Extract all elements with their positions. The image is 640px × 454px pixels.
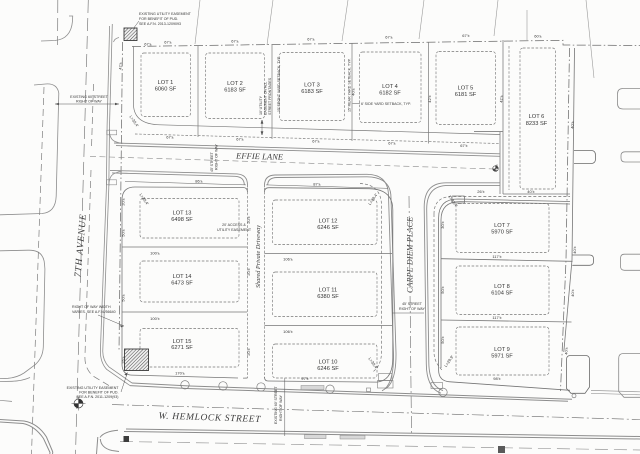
svg-text:STREET FRONTAGES: STREET FRONTAGES (268, 77, 272, 115)
svg-text:6380 SF: 6380 SF (317, 294, 339, 300)
svg-text:20'±: 20'± (121, 197, 126, 205)
svg-text:RIGHT OF WAY: RIGHT OF WAY (399, 307, 425, 311)
svg-text:SEE A.F.N. 2011-1209(93): SEE A.F.N. 2011-1209(93) (76, 395, 118, 399)
svg-text:45' STREET: 45' STREET (210, 151, 214, 172)
svg-text:6181 SF: 6181 SF (455, 92, 477, 98)
svg-text:EXISTING UTILITY EASEMENT: EXISTING UTILITY EASEMENT (67, 386, 120, 390)
svg-text:RIGHT OF WAY: RIGHT OF WAY (279, 395, 283, 421)
svg-text:Shared Private Driveway: Shared Private Driveway (255, 225, 262, 288)
svg-text:5970 SF: 5970 SF (491, 230, 513, 236)
svg-text:40'±: 40'± (570, 288, 575, 296)
svg-text:EFFIE LANE: EFFIE LANE (235, 150, 284, 161)
svg-text:67'±: 67'± (164, 40, 172, 45)
svg-text:50'±: 50'± (121, 293, 126, 301)
svg-text:LOT 5: LOT 5 (458, 86, 474, 92)
svg-text:UTILITY EASEMENT: UTILITY EASEMENT (217, 228, 252, 232)
svg-text:10' UTILITY: 10' UTILITY (259, 95, 263, 115)
svg-text:40'±: 40'± (351, 87, 356, 95)
svg-text:LOT 2: LOT 2 (227, 81, 243, 87)
svg-text:RIGHT OF WAY: RIGHT OF WAY (76, 100, 102, 104)
svg-text:6183 SF: 6183 SF (301, 89, 323, 95)
svg-text:FOR BENEFIT OF PUD.: FOR BENEFIT OF PUD. (79, 391, 118, 395)
svg-text:EXISTING 60' STREET: EXISTING 60' STREET (274, 386, 278, 424)
svg-text:LOT 9: LOT 9 (494, 347, 510, 353)
svg-text:LOT 7: LOT 7 (494, 223, 510, 229)
svg-text:42'±: 42'± (427, 94, 432, 102)
svg-text:67'±: 67'± (236, 137, 244, 142)
svg-text:50'±: 50'± (440, 335, 445, 343)
svg-text:20'±: 20'± (246, 267, 251, 275)
svg-text:67'±: 67'± (388, 141, 396, 146)
svg-text:106'±: 106'± (283, 329, 293, 334)
svg-text:86'±: 86'± (195, 179, 203, 184)
svg-text:6246 SF: 6246 SF (317, 225, 339, 231)
svg-text:6498 SF: 6498 SF (171, 217, 193, 223)
svg-text:100'±: 100'± (150, 316, 160, 321)
svg-text:6473 SF: 6473 SF (171, 281, 193, 287)
svg-text:106'±: 106'± (283, 257, 293, 262)
svg-text:100'±: 100'± (150, 251, 160, 256)
svg-text:60'±: 60'± (534, 34, 542, 39)
svg-text:45'±: 45'± (494, 163, 499, 171)
svg-text:6104 SF: 6104 SF (491, 291, 513, 297)
svg-text:LOT 12: LOT 12 (319, 219, 338, 225)
svg-text:50'±: 50'± (121, 228, 126, 236)
svg-text:EASEMENT ON ALL: EASEMENT ON ALL (264, 82, 268, 115)
svg-text:LOT 6: LOT 6 (529, 114, 545, 120)
svg-text:67'±: 67'± (144, 42, 152, 47)
svg-text:LOT 8: LOT 8 (494, 284, 510, 290)
svg-text:5971 SF: 5971 SF (491, 354, 513, 360)
svg-text:SEE A.F.N. 2013-1209093: SEE A.F.N. 2013-1209093 (139, 22, 181, 26)
svg-text:LOT 13: LOT 13 (173, 211, 192, 217)
svg-text:67'±: 67'± (385, 35, 393, 40)
svg-text:67'±: 67'± (460, 143, 468, 148)
svg-text:67'±: 67'± (312, 139, 320, 144)
svg-text:40'±: 40'± (527, 189, 535, 194)
svg-text:67'±: 67'± (166, 135, 174, 140)
svg-text:EXISTING UTILITY EASEMENT: EXISTING UTILITY EASEMENT (139, 12, 192, 16)
svg-text:170'±: 170'± (175, 371, 185, 376)
svg-text:20'±: 20'± (246, 347, 251, 355)
svg-text:97'±: 97'± (301, 376, 309, 381)
svg-text:8233 SF: 8233 SF (526, 121, 548, 127)
svg-text:45' STREET: 45' STREET (402, 302, 423, 306)
svg-text:FOR BENEFIT OF PUD.: FOR BENEFIT OF PUD. (139, 17, 178, 21)
svg-text:6246 SF: 6246 SF (317, 366, 339, 372)
svg-text:LOT 4: LOT 4 (382, 84, 398, 90)
svg-text:42'±: 42'± (499, 94, 504, 102)
svg-text:EXISTING 60' STREET: EXISTING 60' STREET (70, 95, 108, 99)
svg-text:20' ACCESS &: 20' ACCESS & (222, 223, 246, 227)
svg-text:30'±: 30'± (440, 220, 445, 228)
svg-text:67'±: 67'± (231, 39, 239, 44)
svg-text:87'±: 87'± (313, 182, 321, 187)
svg-text:20'±: 20'± (246, 215, 251, 223)
svg-text:6182 SF: 6182 SF (379, 91, 401, 97)
svg-text:117'±: 117'± (492, 315, 502, 320)
svg-text:15' FRONT YARD SETBACK, TYP.: 15' FRONT YARD SETBACK, TYP. (277, 56, 281, 112)
svg-text:40'±: 40'± (570, 120, 575, 128)
svg-text:98'±: 98'± (493, 376, 501, 381)
svg-text:LOT 1: LOT 1 (158, 80, 174, 86)
svg-text:26'±: 26'± (477, 189, 485, 194)
svg-text:42'±: 42'± (118, 61, 123, 69)
svg-text:40'±: 40'± (572, 245, 577, 253)
svg-text:LOT 3: LOT 3 (304, 83, 320, 89)
svg-text:LOT 14: LOT 14 (173, 274, 192, 280)
svg-text:VARIES. SEE A.F.N./56640: VARIES. SEE A.F.N./56640 (72, 310, 116, 314)
svg-text:117'±: 117'± (492, 254, 502, 259)
svg-text:6060 SF: 6060 SF (155, 87, 177, 93)
svg-text:LOT 11: LOT 11 (319, 288, 337, 294)
svg-text:RIGHT OF WAY: RIGHT OF WAY (215, 144, 219, 170)
svg-text:40'±: 40'± (564, 346, 569, 354)
svg-text:67'±: 67'± (307, 37, 315, 42)
svg-text:67'±: 67'± (462, 33, 470, 38)
svg-text:6' SIDE YARD SETBACK, TYP.: 6' SIDE YARD SETBACK, TYP. (361, 102, 411, 106)
svg-text:50'±: 50'± (440, 285, 445, 293)
svg-text:15' REAR YARD SETBACK, TYP.: 15' REAR YARD SETBACK, TYP. (348, 58, 352, 112)
svg-text:RIGHT OF WAY WIDTH: RIGHT OF WAY WIDTH (72, 305, 111, 309)
svg-text:LOT 10: LOT 10 (319, 360, 338, 366)
svg-text:6183 SF: 6183 SF (224, 88, 246, 94)
svg-text:6271 SF: 6271 SF (171, 345, 193, 351)
